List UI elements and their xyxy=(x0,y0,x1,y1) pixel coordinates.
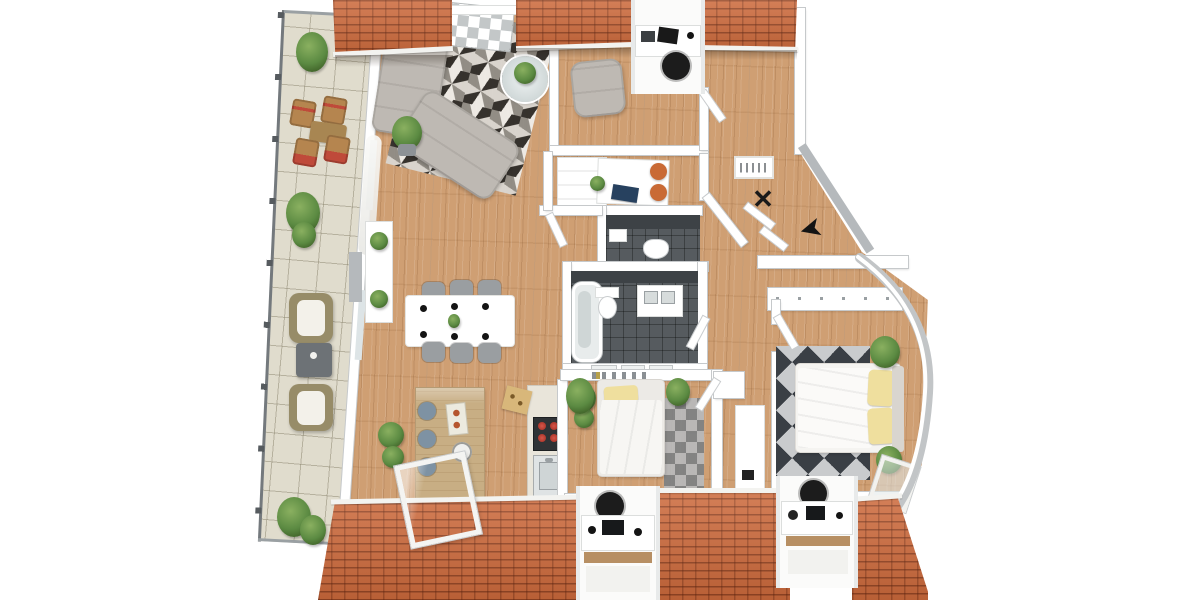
floor-item xyxy=(742,470,754,480)
roof-shadow xyxy=(703,50,797,60)
dining-wall-v xyxy=(544,152,552,210)
dining-chair xyxy=(422,342,445,362)
laptop xyxy=(657,27,679,45)
shelf-plant-2 xyxy=(370,290,388,308)
kitchen-plant-left xyxy=(378,422,404,448)
roof-shadow xyxy=(516,48,636,58)
place-setting xyxy=(420,331,427,338)
wc-left-wall xyxy=(598,206,606,266)
kitchen-sink-basin xyxy=(539,462,559,490)
wc-hand-basin xyxy=(610,230,626,241)
bar-stool xyxy=(418,402,436,420)
desk-lamp xyxy=(788,510,798,520)
vanity-sink xyxy=(661,291,675,304)
wall-top-gap xyxy=(452,6,516,14)
dining-table xyxy=(406,296,514,346)
place-setting xyxy=(420,305,427,312)
outdoor-chair xyxy=(323,134,351,165)
roof-top-right xyxy=(703,0,797,52)
roof-ridge xyxy=(656,488,790,493)
bar-stool xyxy=(418,430,436,448)
roof-bottom-right xyxy=(656,490,790,600)
island-item xyxy=(446,403,467,435)
bath-top-wall xyxy=(563,262,708,271)
dining-centerpiece-plant xyxy=(448,314,460,328)
terrace-plant-top xyxy=(296,32,328,72)
shelf-plant xyxy=(370,232,388,250)
place-setting xyxy=(451,333,458,340)
wall-stub xyxy=(349,252,362,302)
place-setting xyxy=(451,303,458,310)
monitor xyxy=(806,506,825,520)
bathtub-basin xyxy=(578,291,591,348)
lounge-cushion xyxy=(297,391,325,425)
place-setting xyxy=(482,333,489,340)
wall-picture xyxy=(736,158,772,177)
mousepad xyxy=(641,31,655,42)
terrace-plant-middle-2 xyxy=(292,222,316,248)
office-armchair xyxy=(569,57,627,118)
lounge-cushion xyxy=(297,300,325,336)
bedroom1-plant-left xyxy=(566,378,594,414)
roof-shadow xyxy=(335,55,453,67)
outdoor-chair xyxy=(292,137,320,168)
kitchen-faucet xyxy=(545,458,553,462)
dormer-base xyxy=(788,550,848,574)
hall-divider-wall-2 xyxy=(700,154,708,200)
bath-left-wall xyxy=(563,262,571,372)
dining-chair xyxy=(478,343,501,363)
bedroom1-plant-right xyxy=(666,378,690,406)
office-plant xyxy=(590,176,605,191)
outdoor-chair xyxy=(320,95,348,126)
wc-toilet xyxy=(644,240,668,258)
single-bed-duvet xyxy=(600,400,662,474)
toilet-tank xyxy=(596,288,618,297)
toilet-bowl xyxy=(599,297,616,318)
burner xyxy=(538,422,546,430)
entry-right-wall xyxy=(795,8,805,154)
office-bottom-wall xyxy=(550,146,708,155)
terrace-plant-bottom-2 xyxy=(300,515,326,545)
bedroom1-rug xyxy=(664,398,704,490)
mouse xyxy=(836,512,843,519)
dining-chair xyxy=(450,343,473,363)
monitor xyxy=(602,520,624,535)
dormer-base xyxy=(586,566,650,592)
burner xyxy=(538,434,546,442)
desk-wood-strip xyxy=(584,552,652,563)
desk-wood-strip xyxy=(786,536,850,546)
vanity-sink xyxy=(644,291,658,304)
burner xyxy=(550,434,558,442)
wc-wall-tiles xyxy=(606,215,700,229)
speaker xyxy=(634,528,642,536)
bedroom1-closet-corner xyxy=(714,372,744,398)
orange-stool xyxy=(650,163,667,180)
lounge-coffee-table xyxy=(296,343,332,377)
speaker xyxy=(588,526,596,534)
curved-outer-wall xyxy=(845,243,940,521)
office-chair xyxy=(662,52,690,80)
wc-top-wall xyxy=(598,206,702,215)
plant-pot xyxy=(398,144,416,156)
floorplan-3d-render: ✕ ➤ xyxy=(0,0,1200,600)
wall-shelf-books xyxy=(592,372,652,379)
table-decor-dot xyxy=(310,352,317,359)
burner xyxy=(550,422,558,430)
place-setting xyxy=(482,303,489,310)
orange-stool xyxy=(650,184,667,201)
desk-mug xyxy=(687,32,694,39)
coffee-table-plant xyxy=(514,62,536,84)
